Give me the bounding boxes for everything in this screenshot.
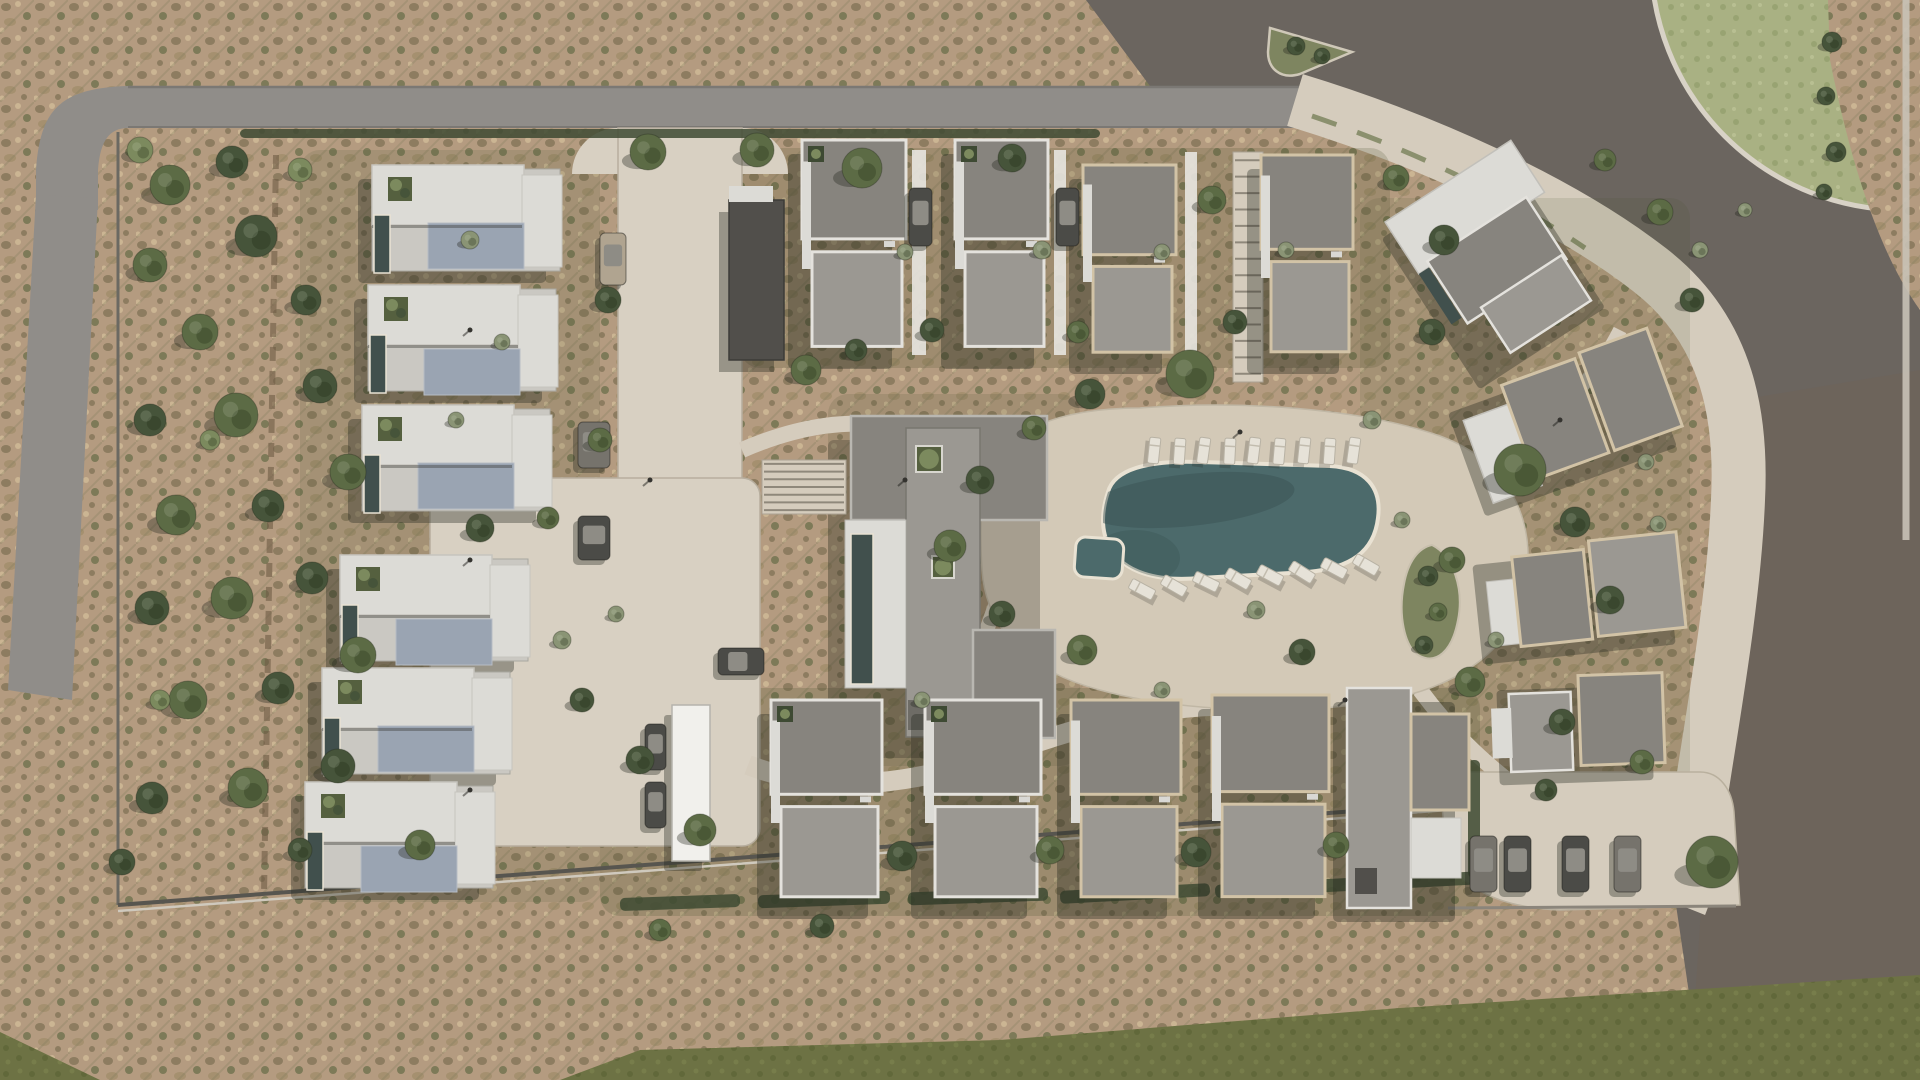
canopy-highlight [132,142,141,151]
house-slab [802,162,811,270]
canopy-highlight [1635,755,1643,763]
sun-lounger [1293,437,1311,468]
villa-east-slab [512,415,552,507]
house-roof-lower [1081,807,1177,897]
house [1247,155,1353,374]
canopy-highlight [302,568,313,579]
canopy-highlight [1504,454,1522,472]
canopy-highlight [268,678,279,689]
canopy-highlight [1433,607,1439,613]
canopy-highlight [1187,843,1198,854]
roof-vent [1331,251,1342,257]
courtyard-tree [934,709,944,719]
house-roof-dark [729,200,784,360]
car-roof [1059,201,1075,225]
roof-vent [1019,796,1030,802]
roof-vent [1307,794,1318,800]
house-slab [1083,185,1092,283]
canopy-highlight [1741,206,1746,211]
canopy-highlight [219,585,234,600]
canopy-highlight [893,847,904,858]
canopy-highlight [690,820,701,831]
canopy-highlight [1294,644,1303,653]
canopy-highlight [411,836,422,847]
canopy-highlight [1696,846,1714,864]
canopy-highlight [1554,714,1563,723]
canopy-highlight [1367,415,1373,421]
canopy-highlight [1157,685,1163,691]
canopy-highlight [1397,515,1403,521]
masterplan-canvas [0,0,1920,1080]
canopy-highlight [1004,150,1014,160]
canopy-highlight [925,323,933,331]
car-roof [583,526,605,544]
house-slab [1212,716,1221,821]
car-roof [1618,848,1637,872]
canopy-highlight [310,376,322,388]
canopy-highlight [917,695,923,701]
canopy-highlight [114,854,123,863]
canopy-highlight [1027,421,1035,429]
canopy-highlight [204,434,211,441]
house [911,700,1041,919]
car-roof [604,244,622,266]
car [1465,836,1497,897]
canopy-highlight [1424,324,1433,333]
canopy-highlight [541,511,549,519]
canopy-highlight [189,321,202,334]
canopy-highlight [236,776,250,790]
car [1609,836,1641,897]
canopy-highlight [158,173,172,187]
canopy-highlight [1081,385,1092,396]
house [1057,700,1181,919]
house-roof-upper [1411,714,1469,810]
sun-lounger [1268,438,1286,469]
sun-lounger [1319,438,1336,469]
canopy-highlight [1281,245,1287,251]
villa-lap-pool [370,335,386,393]
clubhouse-lap-pool [851,534,873,684]
canopy-highlight [293,843,301,851]
stairway [762,460,846,514]
house-roof-upper [1083,165,1176,255]
canopy-highlight [142,598,154,610]
sun-lounger [1143,437,1161,468]
car-roof [1474,848,1493,872]
canopy-highlight [1641,457,1647,463]
villa-lower-roof [418,463,514,509]
car-roof [728,652,747,671]
canopy-highlight [328,756,340,768]
car [904,188,932,251]
house-slab [729,186,773,202]
canopy-highlight [815,919,823,927]
house-slab [1411,818,1461,878]
canopy-highlight [164,503,178,517]
villa [354,285,558,403]
canopy-highlight [293,163,301,171]
hedge [240,129,1100,138]
villa-roof [1588,532,1686,637]
canopy-highlight [1419,640,1425,646]
house [757,700,882,919]
bottom-house-row [757,688,1469,922]
canopy-highlight [243,223,258,238]
canopy-highlight [1251,605,1257,611]
canopy-highlight [1317,51,1323,57]
canopy-highlight [497,337,503,343]
canopy-highlight [1566,513,1577,524]
house-roof-lower [1271,262,1349,352]
courtyard-tree [333,805,343,815]
canopy-highlight [1291,41,1297,47]
car-roof [648,792,663,811]
canopy-highlight [611,609,617,615]
car [713,648,764,680]
villa-east-slab [518,295,558,387]
canopy-highlight [154,694,161,701]
canopy-highlight [637,141,650,154]
courtyard-tree [358,569,370,581]
courtyard-tree [340,682,352,694]
canopy-highlight [994,606,1003,615]
villa-lower-roof [378,726,474,772]
courtyard-tree [780,709,790,719]
car [1557,836,1589,897]
canopy-highlight [1695,245,1701,251]
car [1499,836,1531,897]
house [1333,688,1469,922]
canopy-highlight [1826,36,1833,43]
villa [291,782,495,900]
courtyard-tree [323,796,335,808]
canopy-highlight [337,461,350,474]
canopy-highlight [575,693,583,701]
canopy-highlight [1042,842,1052,852]
canopy-highlight [1491,635,1497,641]
house-dark-block [1355,868,1377,894]
canopy-highlight [940,536,951,547]
house-roof-lower [935,807,1037,897]
roof-planter [916,446,942,472]
villa-lap-pool [307,832,323,890]
villa-roof [1512,550,1593,647]
canopy-highlight [1830,146,1837,153]
villa [358,165,562,283]
canopy-highlight [1819,187,1825,193]
courtyard-tree [964,149,974,159]
roof-vent [1159,796,1170,802]
canopy-highlight [1461,673,1472,684]
canopy-highlight [850,156,864,170]
house [719,186,784,372]
villa-lower-roof [396,619,492,665]
canopy-highlight [451,415,457,421]
courtyard-tree [368,578,378,588]
canopy-highlight [1598,153,1606,161]
courtyard-tree [390,428,400,438]
villa-roof [1578,673,1665,766]
house-roof-upper [1261,155,1353,249]
canopy-highlight [1071,325,1079,333]
canopy-highlight [1685,293,1693,301]
canopy-highlight [347,644,360,657]
aerial-site-render [0,0,1920,1080]
house-slab [771,721,780,824]
house-slab [925,721,934,824]
sun-lounger [1219,438,1236,469]
villa-slab [1491,708,1513,759]
canopy-highlight [1176,360,1193,377]
house-roof-upper [1071,700,1181,794]
canopy-highlight [600,292,609,301]
canopy-highlight [797,361,808,372]
villa-east-slab [455,792,495,884]
courtyard-tree [350,691,360,701]
car-roof [1566,848,1585,872]
canopy-highlight [177,689,190,702]
canopy-highlight [593,433,601,441]
villa-lower-roof [424,349,520,395]
car [1051,188,1079,251]
house-roof-lower [781,807,878,897]
canopy-highlight [1037,245,1043,251]
villa-lap-pool [364,455,380,513]
courtyard-tree [386,299,398,311]
house-roof-lower [965,252,1044,347]
spa-pool [1074,536,1125,579]
dividing-wall [1185,152,1197,352]
canopy-highlight [142,788,153,799]
canopy-highlight [1228,315,1236,323]
canopy-highlight [1539,783,1547,791]
house-slab [955,162,964,270]
canopy-highlight [972,472,982,482]
canopy-highlight [653,923,661,931]
courtyard-tree [380,419,392,431]
courtyard-tree [400,188,410,198]
canopy-highlight [1328,837,1337,846]
canopy-highlight [1073,641,1084,652]
roof-vent [860,796,871,802]
house-roof-lower [812,252,902,347]
canopy-highlight [747,140,759,152]
canopy-highlight [465,235,471,241]
sun-lounger [1169,438,1186,469]
canopy-highlight [557,635,563,641]
canopy-highlight [1435,231,1446,242]
roof-vent [884,241,895,247]
canopy-highlight [632,752,642,762]
canopy-highlight [1602,592,1612,602]
car [640,782,666,833]
villa-east-slab [490,565,530,657]
canopy-highlight [900,247,906,253]
courtyard-tree [811,149,821,159]
canopy-highlight [1653,519,1659,525]
canopy-highlight [140,255,152,267]
house-roof-upper [1212,695,1329,792]
canopy-highlight [1444,552,1453,561]
house-slab [1261,176,1270,279]
villa-east-slab [522,175,562,267]
canopy-highlight [1652,204,1661,213]
car [595,233,626,290]
canopy-highlight [1422,570,1429,577]
house [1198,695,1329,919]
canopy-highlight [1204,192,1214,202]
car [573,516,610,565]
house-roof-lower [1093,266,1172,352]
courtyard-tree [396,308,406,318]
canopy-highlight [1821,91,1827,97]
house [1069,165,1176,374]
villa-east-slab [472,678,512,770]
canopy-highlight [222,152,233,163]
canopy-highlight [223,402,238,417]
canopy-highlight [849,343,857,351]
canopy-highlight [1388,170,1397,179]
canopy-highlight [472,520,482,530]
canopy-highlight [140,410,151,421]
house-slab [1071,721,1080,824]
canopy-highlight [258,496,269,507]
canopy-highlight [1157,247,1163,253]
canopy-highlight [297,291,308,302]
courtyard-tree [390,179,402,191]
car-roof [912,201,928,225]
villa-lap-pool [374,215,390,273]
dividing-wall [1054,150,1066,355]
house-roof-lower [1222,804,1325,896]
parking-kerb [1448,906,1736,908]
car-roof [1508,848,1527,872]
